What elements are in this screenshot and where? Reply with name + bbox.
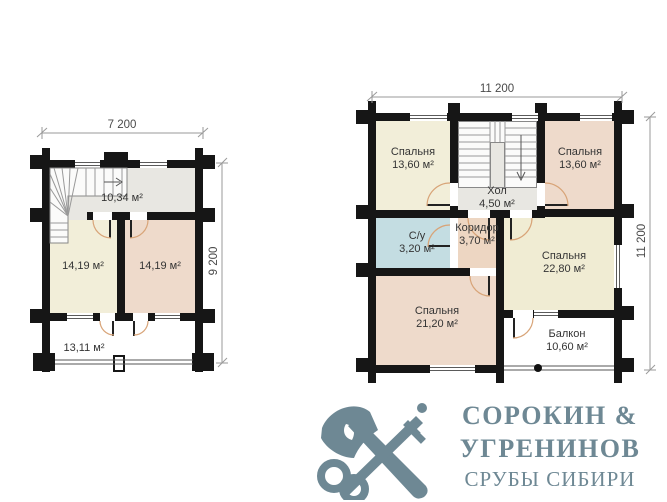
room-name: Спальня	[391, 146, 435, 158]
floor-plans-sheet: 10,34 м² 14,19 м² 14,19 м² 13,11 м² 7 20…	[0, 0, 667, 502]
dimension-height: 11 200	[636, 215, 648, 267]
room-label: 10,34 м²	[82, 192, 162, 205]
room-name: С/у	[409, 230, 426, 242]
door-leaf	[513, 318, 515, 338]
sf-wall-hall-1	[458, 210, 468, 218]
window	[155, 313, 180, 321]
room-name: Хол	[487, 185, 507, 197]
log-end	[356, 110, 368, 124]
log-end	[203, 155, 215, 169]
room-label: Спальня22,80 м²	[524, 250, 604, 276]
log-end	[30, 309, 42, 323]
door-leaf	[109, 220, 111, 238]
log-end	[368, 101, 376, 113]
room-name: Коридор	[455, 222, 498, 234]
door-opening	[470, 268, 490, 276]
window	[75, 160, 100, 168]
room-name: Балкон	[549, 328, 586, 340]
window	[534, 310, 558, 318]
door-leaf	[112, 321, 114, 336]
logo-line-3: СРУБЫ СИБИРИ	[448, 465, 652, 494]
room-label: Балкон10,60 м²	[527, 328, 607, 354]
logo-line-2: УГРЕНИНОВ	[448, 432, 652, 465]
log-end	[368, 373, 376, 383]
logo-line-1: СОРОКИН &	[448, 399, 652, 432]
log-end	[622, 110, 634, 124]
dimension-width: 11 200	[457, 83, 537, 95]
room-area: 14,19 м²	[62, 260, 104, 272]
corner-post	[192, 353, 214, 371]
room-area: 4,50 м²	[479, 198, 515, 210]
sf-wall-hall-3	[532, 210, 545, 218]
window	[430, 365, 475, 373]
log-end	[356, 205, 368, 219]
window	[140, 160, 167, 168]
logo-text: СОРОКИН & УГРЕНИНОВ СРУБЫ СИБИРИ	[448, 399, 652, 494]
door-opening	[468, 210, 490, 218]
door-leaf	[545, 204, 568, 206]
log-end	[356, 263, 368, 277]
door-opening	[100, 313, 115, 321]
room-label: 14,19 м²	[43, 260, 123, 273]
door-opening	[513, 310, 533, 318]
log-end	[614, 373, 622, 383]
log-end	[448, 103, 460, 113]
log-end	[614, 101, 622, 113]
log-end	[30, 208, 42, 222]
door-opening	[93, 212, 112, 220]
window	[580, 113, 612, 121]
log-end	[622, 204, 634, 218]
log-end	[203, 309, 215, 323]
room-area: 3,20 м²	[399, 243, 435, 255]
door-leaf	[427, 204, 450, 206]
window	[614, 245, 622, 288]
room-area: 14,19 м²	[139, 260, 181, 272]
dimension-width: 7 200	[82, 119, 162, 131]
axe-and-key-icon	[312, 396, 442, 500]
room-name: Спальня	[542, 250, 586, 262]
room-area: 13,60 м²	[392, 159, 434, 171]
room-area: 22,80 м²	[543, 263, 585, 275]
door-leaf	[130, 220, 132, 238]
log-end	[203, 208, 215, 222]
room-area: 21,20 м²	[416, 318, 458, 330]
room-name: Спальня	[415, 305, 459, 317]
room-label: Хол4,50 м²	[457, 185, 537, 211]
log-end	[496, 373, 504, 383]
log-end	[195, 148, 203, 160]
log-end	[356, 358, 368, 372]
room-area: 10,60 м²	[546, 341, 588, 353]
room-label: Коридор3,70 м²	[437, 222, 517, 248]
door-opening	[133, 313, 148, 321]
log-end	[30, 155, 42, 169]
room-label: Спальня13,60 м²	[540, 146, 620, 172]
log-end	[42, 148, 50, 160]
door-leaf	[133, 321, 135, 336]
room-label: Спальня21,20 м²	[397, 305, 477, 331]
door-opening	[510, 210, 532, 218]
sf-wall-bath-bottom	[368, 268, 470, 276]
room-area: 13,60 м²	[559, 159, 601, 171]
door-opening	[537, 183, 545, 206]
room-area: 13,11 м²	[64, 342, 105, 354]
door-opening	[130, 212, 147, 220]
dimension-height: 9 200	[208, 235, 220, 287]
terrace-post	[113, 355, 125, 372]
window	[67, 313, 93, 321]
room-label: 14,19 м²	[120, 260, 200, 273]
corner-post	[33, 353, 55, 371]
window	[410, 113, 447, 121]
room-area: 3,70 м²	[459, 235, 495, 247]
door-leaf	[488, 276, 490, 296]
sf-wall-a	[376, 210, 450, 218]
log-end	[622, 358, 634, 372]
room-label: Спальня13,60 м²	[373, 146, 453, 172]
room-label: 13,11 м²	[44, 342, 124, 355]
log-end	[622, 306, 634, 320]
window	[512, 113, 538, 121]
log-end	[535, 103, 547, 113]
log-end	[104, 152, 128, 168]
sf-wall-hall-2	[490, 210, 510, 218]
room-name: Спальня	[558, 146, 602, 158]
sf-wall-b	[537, 209, 614, 217]
room-area: 10,34 м²	[101, 192, 143, 204]
